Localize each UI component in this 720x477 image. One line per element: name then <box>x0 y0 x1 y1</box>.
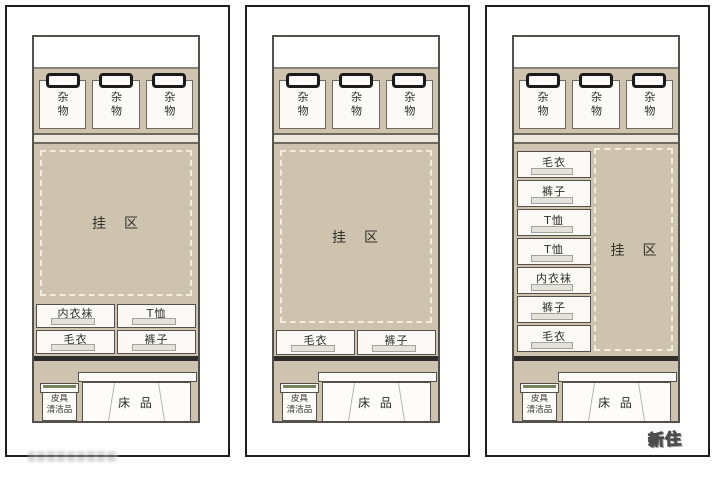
lid-green-strip <box>283 385 316 388</box>
drawer-handle <box>372 345 416 352</box>
box-label: 杂物 <box>57 91 68 119</box>
drawer-handle <box>132 344 176 351</box>
fold-line <box>348 383 355 421</box>
wardrobe-1: 杂物 杂物 杂物 挂 区 内衣袜 <box>32 35 200 423</box>
box-handle-icon <box>152 73 186 88</box>
box-handle-icon <box>526 73 560 88</box>
lid-green-strip <box>523 385 556 388</box>
drawer: 毛衣 <box>517 151 591 178</box>
top-compartment <box>274 37 438 67</box>
drawer-handle <box>531 255 573 262</box>
panel-layout-3: 杂物 杂物 杂物 毛衣 <box>485 5 710 457</box>
bedding-bag: 床 品 <box>82 382 191 421</box>
drawer-handle <box>531 313 573 320</box>
drawer-handle <box>531 284 573 291</box>
wardrobe-3: 杂物 杂物 杂物 毛衣 <box>512 35 680 423</box>
storage-box: 杂物 <box>146 80 193 129</box>
leather-care-label-line2: 清洁品 <box>43 405 76 416</box>
brand-logo: 新住 <box>647 425 682 451</box>
drawer-section: 内衣袜 T恤 毛衣 裤子 <box>34 302 198 356</box>
box-label: 杂物 <box>164 91 175 119</box>
drawer-section: 毛衣 裤子 <box>274 329 438 356</box>
bedding-label: 床 品 <box>358 394 395 411</box>
panel-layout-2: 杂物 杂物 杂物 挂 区 毛衣 <box>245 5 470 457</box>
box-handle-icon <box>392 73 426 88</box>
hanging-zone: 挂 区 <box>274 144 438 329</box>
drawer: T恤 <box>517 238 591 265</box>
drawer: 毛衣 <box>276 330 355 355</box>
hanging-zone-label: 挂 区 <box>591 240 678 260</box>
leather-care-box-lid <box>280 383 319 393</box>
box-label: 杂物 <box>350 91 361 119</box>
storage-box: 杂物 <box>626 80 673 129</box>
storage-box: 杂物 <box>572 80 619 129</box>
closet-layout-diagram: 杂物 杂物 杂物 挂 区 内衣袜 <box>0 0 720 477</box>
main-compartment: 毛衣 裤子 T恤 T恤 <box>514 144 678 356</box>
drawer: 裤子 <box>517 180 591 207</box>
drawer: 毛衣 <box>36 330 115 354</box>
storage-box-shelf: 杂物 杂物 杂物 <box>514 67 678 133</box>
hanging-zone-label: 挂 区 <box>274 227 438 247</box>
drawer-handle <box>51 344 95 351</box>
storage-box-shelf: 杂物 杂物 杂物 <box>274 67 438 133</box>
top-compartment <box>34 37 198 67</box>
storage-box: 杂物 <box>279 80 326 129</box>
leather-care-label-line1: 皮具 <box>523 394 556 405</box>
drawer: 裤子 <box>517 296 591 323</box>
box-handle-icon <box>286 73 320 88</box>
drawer-handle <box>291 345 335 352</box>
fold-line <box>108 383 115 421</box>
drawer-stack: 毛衣 裤子 T恤 T恤 <box>517 151 591 352</box>
shelf-board <box>514 133 678 144</box>
fold-line <box>638 383 645 421</box>
storage-box-shelf: 杂物 杂物 杂物 <box>34 67 198 133</box>
box-label: 杂物 <box>537 91 548 119</box>
shelf-board <box>34 133 198 144</box>
box-label: 杂物 <box>644 91 655 119</box>
watermark-smudge <box>28 451 118 462</box>
panel-layout-1: 杂物 杂物 杂物 挂 区 内衣袜 <box>5 5 230 457</box>
top-compartment <box>514 37 678 67</box>
box-handle-icon <box>46 73 80 88</box>
bottom-compartment: 皮具 清洁品 床 品 <box>514 361 678 421</box>
leather-care-label-line1: 皮具 <box>283 394 316 405</box>
leather-care-label-line1: 皮具 <box>43 394 76 405</box>
leather-care-box: 皮具 清洁品 <box>42 384 77 421</box>
bedding-label: 床 品 <box>118 394 155 411</box>
leather-care-box-lid <box>520 383 559 393</box>
hanging-zone: 挂 区 <box>34 144 198 302</box>
box-label: 杂物 <box>110 91 121 119</box>
leather-care-box: 皮具 清洁品 <box>522 384 557 421</box>
drawer-handle <box>132 318 176 325</box>
leather-care-label: 皮具 清洁品 <box>523 394 556 415</box>
bedding-bag-lid <box>78 372 197 382</box>
drawer: T恤 <box>117 304 196 328</box>
leather-care-box-lid <box>40 383 79 393</box>
box-handle-icon <box>632 73 666 88</box>
storage-box: 杂物 <box>386 80 433 129</box>
box-label: 杂物 <box>297 91 308 119</box>
bedding-bag: 床 品 <box>562 382 671 421</box>
leather-care-box: 皮具 清洁品 <box>282 384 317 421</box>
lid-green-strip <box>43 385 76 388</box>
drawer: T恤 <box>517 209 591 236</box>
bottom-compartment: 皮具 清洁品 床 品 <box>34 361 198 421</box>
box-handle-icon <box>339 73 373 88</box>
drawer-handle <box>531 168 573 175</box>
fold-line <box>588 383 595 421</box>
wardrobe-2: 杂物 杂物 杂物 挂 区 毛衣 <box>272 35 440 423</box>
bedding-bag: 床 品 <box>322 382 431 421</box>
fold-line <box>398 383 405 421</box>
leather-care-label: 皮具 清洁品 <box>43 394 76 415</box>
drawer-handle <box>531 342 573 349</box>
box-handle-icon <box>579 73 613 88</box>
leather-care-label: 皮具 清洁品 <box>283 394 316 415</box>
storage-box: 杂物 <box>39 80 86 129</box>
leather-care-label-line2: 清洁品 <box>523 405 556 416</box>
storage-box: 杂物 <box>332 80 379 129</box>
fold-line <box>158 383 165 421</box>
drawer: 毛衣 <box>517 325 591 352</box>
shelf-board <box>274 133 438 144</box>
drawer-handle <box>51 318 95 325</box>
storage-box: 杂物 <box>519 80 566 129</box>
bedding-bag-lid <box>558 372 677 382</box>
box-label: 杂物 <box>590 91 601 119</box>
drawer: 内衣袜 <box>517 267 591 294</box>
drawer-handle <box>531 226 573 233</box>
box-label: 杂物 <box>404 91 415 119</box>
leather-care-label-line2: 清洁品 <box>283 405 316 416</box>
bedding-bag-lid <box>318 372 437 382</box>
drawer-handle <box>531 197 573 204</box>
drawer: 内衣袜 <box>36 304 115 328</box>
bedding-label: 床 品 <box>598 394 635 411</box>
bottom-compartment: 皮具 清洁品 床 品 <box>274 361 438 421</box>
drawer: 裤子 <box>357 330 436 355</box>
drawer: 裤子 <box>117 330 196 354</box>
hanging-zone-label: 挂 区 <box>34 213 198 233</box>
hanging-zone: 挂 区 <box>591 144 678 356</box>
storage-box: 杂物 <box>92 80 139 129</box>
box-handle-icon <box>99 73 133 88</box>
